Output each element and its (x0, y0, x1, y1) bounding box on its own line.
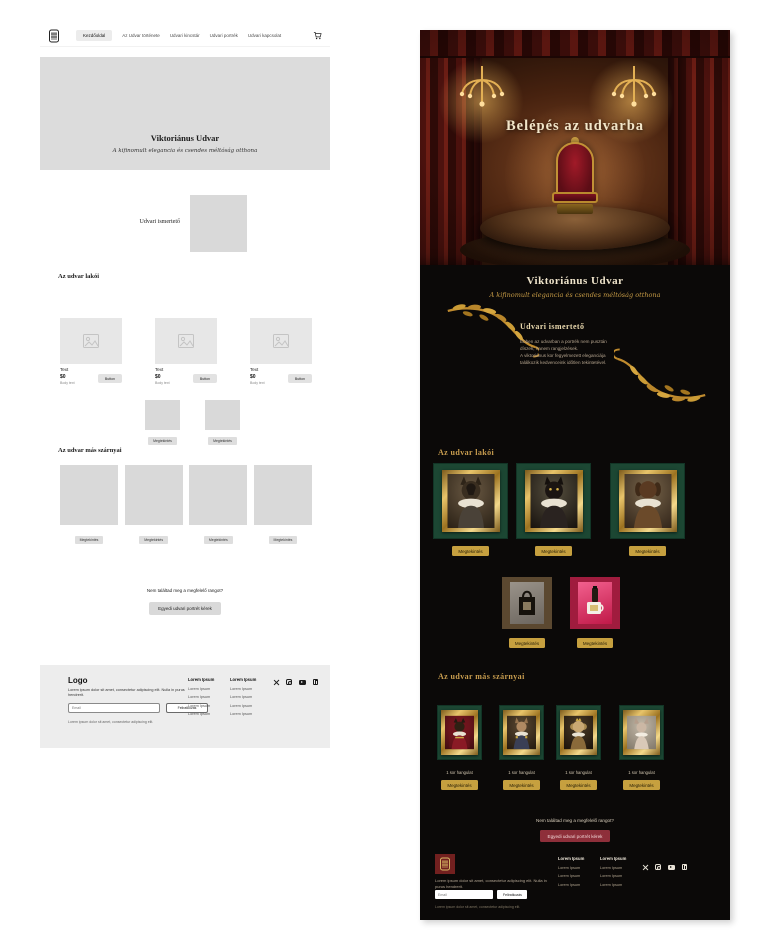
footer-link-column: Lorem Ipsum Lorem Ipsum Lorem Ipsum Lore… (230, 677, 256, 716)
wing-caption: 1 sor hangulat (446, 770, 473, 775)
cta-question: Nem találtad meg a megfelelő rangot? (536, 818, 614, 823)
gold-frame (525, 470, 583, 532)
about-heading: Udvari ismertető (520, 322, 672, 331)
cta-button[interactable]: Egyedi udvari portrét kérek (149, 602, 221, 615)
gold-frame (442, 470, 500, 532)
design-hero: Belépés az udvarba (420, 30, 730, 265)
view-button[interactable]: Megtekintés (560, 780, 596, 790)
wing-caption: 1 sor hangulat (565, 770, 592, 775)
footer-link[interactable]: Lorem Ipsum (600, 874, 626, 878)
card-button[interactable]: Button (193, 374, 217, 383)
footer-link[interactable]: Lorem Ipsum (600, 883, 626, 887)
linkedin-icon[interactable] (313, 679, 319, 685)
wireframe-hero: Viktoriánus Udvar A kifinomult elegancia… (40, 57, 330, 170)
design-artboard: Belépés az udvarba Viktoriánus Udvar A k… (420, 30, 730, 920)
sphynx-cat-portrait[interactable] (619, 705, 664, 760)
wing-placeholder (60, 465, 118, 525)
footer-link[interactable]: Lorem Ipsum (230, 704, 256, 708)
social-icons (273, 679, 318, 685)
card-body-text: Body text (250, 381, 265, 385)
about-section: Udvari ismertető Ebben az udvarban a por… (520, 322, 672, 367)
product-card: Megtekintés (502, 577, 552, 648)
shepherd-dog-portrait[interactable] (433, 463, 508, 539)
about-body: Ebben az udvarban a portrék nem pusztán … (520, 339, 672, 367)
footer-link[interactable]: Lorem Ipsum (558, 883, 584, 887)
footer-link-column: Lorem Ipsum Lorem Ipsum Lorem Ipsum Lore… (188, 677, 214, 716)
portrait-card: Megtekintés (433, 463, 508, 556)
gold-frame (619, 470, 677, 532)
wing-item: Megtekintés (254, 465, 312, 544)
instagram-icon[interactable] (286, 679, 292, 685)
crest-icon (439, 857, 451, 871)
image-placeholder (250, 318, 312, 364)
footer-link[interactable]: Lorem Ipsum (558, 874, 584, 878)
footer-link[interactable]: Lorem Ipsum (230, 712, 256, 716)
wireframe-artboard: Kezdőoldal Az Udvar története Udvari kin… (40, 25, 330, 750)
gold-frame (623, 710, 660, 755)
view-button[interactable]: Megtekintés (208, 437, 237, 445)
site-title: Viktoriánus Udvar (420, 275, 730, 287)
nav-item-treasury[interactable]: Udvari kincstár (170, 33, 200, 38)
view-button[interactable]: Megtekintés (509, 638, 545, 648)
small-products-row: Megtekintés Megtekintés (145, 400, 240, 445)
gold-frame (441, 710, 478, 755)
cta-question: Nem találtad meg a megfelelő rangot? (147, 588, 223, 593)
footer-link[interactable]: Lorem Ipsum (188, 687, 214, 691)
card-title: Text (60, 367, 122, 372)
wing-item: Megtekintés (125, 465, 183, 544)
wing-card: 1 sor hangulat Megtekintés (437, 705, 482, 790)
linkedin-icon[interactable] (682, 864, 688, 870)
footer-link[interactable]: Lorem Ipsum (558, 866, 584, 870)
nav-item-history[interactable]: Az Udvar története (122, 33, 160, 38)
cart-icon[interactable] (313, 31, 322, 40)
portrait-art (446, 474, 496, 528)
portrait-art (564, 714, 593, 751)
intro-section: Udvari ismertető (40, 195, 330, 252)
pekingese-crown-portrait[interactable] (556, 705, 601, 760)
nav-items: Kezdőoldal Az Udvar története Udvari kin… (76, 30, 281, 41)
wings-heading: Az udvar más szárnyai (438, 672, 525, 681)
small-product: Megtekintés (145, 400, 180, 445)
footer-link[interactable]: Lorem Ipsum (188, 712, 214, 716)
cta-button[interactable]: Egyedi udvari portrét kérek (540, 830, 611, 842)
instagram-icon[interactable] (655, 864, 661, 870)
card-button[interactable]: Button (288, 374, 312, 383)
portrait-art (507, 714, 536, 751)
product-card: Text $0 Body text Button (250, 318, 312, 385)
cta-section: Nem találtad meg a megfelelő rangot? Egy… (420, 818, 730, 842)
wireframe-navbar: Kezdőoldal Az Udvar története Udvari kin… (40, 25, 330, 47)
view-button[interactable]: Megtekintés (75, 536, 104, 544)
product-card: Text $0 Body text Button (60, 318, 122, 385)
portrait-art (445, 714, 474, 751)
image-placeholder (60, 318, 122, 364)
wing-placeholder (125, 465, 183, 525)
x-twitter-icon[interactable] (273, 679, 279, 685)
dachshund-portrait[interactable] (610, 463, 685, 539)
dog-on-throne-portrait[interactable] (437, 705, 482, 760)
view-button[interactable]: Megtekintés (535, 546, 571, 556)
wing-card: 1 sor hangulat Megtekintés (499, 705, 544, 790)
portrait-art (529, 474, 579, 528)
mug-and-bottle-icon (582, 586, 608, 620)
residents-heading: Az udvar lakói (58, 273, 99, 280)
intro-label: Udvari ismertető (140, 219, 181, 225)
newsletter-form: Feliratkozás (435, 890, 527, 899)
hero-subtitle: A kifinomult elegancia és csendes méltós… (113, 148, 258, 154)
design-footer: Lorem ipsum dolor sit amet, consectetur … (420, 852, 730, 920)
wing-card: 1 sor hangulat Megtekintés (619, 705, 664, 790)
site-subtitle: A kifinomult elegancia és csendes méltós… (420, 291, 730, 299)
wing-caption: 1 sor hangulat (628, 770, 655, 775)
card-body-text: Body text (60, 381, 75, 385)
footer-logo-crest (435, 854, 455, 874)
tote-bag-icon (515, 587, 539, 619)
portrait-card: Megtekintés (516, 463, 591, 556)
email-input[interactable] (435, 890, 493, 899)
vignette-overlay (420, 30, 730, 265)
view-button[interactable]: Megtekintés (503, 780, 539, 790)
column-header: Lorem Ipsum (188, 677, 214, 682)
hero-title: Belépés az udvarba (420, 118, 730, 135)
footer-note: Lorem ipsum dolor sit amet, consectetur … (435, 905, 520, 909)
card-body-text: Body text (155, 381, 170, 385)
mug-image[interactable] (570, 577, 620, 629)
wings-row: Megtekintés Megtekintés Megtekintés Megt… (60, 465, 312, 544)
footer-link[interactable]: Lorem Ipsum (230, 695, 256, 699)
social-icons (642, 864, 687, 870)
newsletter-form: Feliratkozás (68, 703, 208, 713)
footer-link-column: Lorem Ipsum Lorem Ipsum Lorem Ipsum Lore… (558, 856, 584, 887)
image-placeholder (155, 318, 217, 364)
view-button[interactable]: Megtekintés (441, 780, 477, 790)
card-price: $0 (250, 374, 265, 380)
footer-link[interactable]: Lorem Ipsum (188, 695, 214, 699)
footer-description: Lorem ipsum dolor sit amet, consectetur … (435, 878, 553, 889)
product-card: Megtekintés (570, 577, 620, 648)
wing-card: 1 sor hangulat Megtekintés (556, 705, 601, 790)
nav-item-contact[interactable]: Udvari kapcsolat (248, 33, 281, 38)
picture-icon (273, 334, 289, 348)
footer-logo: Logo (68, 676, 88, 685)
gold-frame (503, 710, 540, 755)
view-button[interactable]: Megtekintés (577, 638, 613, 648)
footer-link[interactable]: Lorem Ipsum (230, 687, 256, 691)
tote-bag-image[interactable] (502, 577, 552, 629)
sphynx-officer-portrait[interactable] (499, 705, 544, 760)
footer-note: Lorem ipsum dolor sit amet, consectetur … (68, 720, 153, 724)
card-title: Text (250, 367, 312, 372)
residents-card-row: Text $0 Body text Button (60, 318, 312, 385)
wing-item: Megtekintés (60, 465, 118, 544)
picture-icon (178, 334, 194, 348)
card-price: $0 (60, 374, 75, 380)
portrait-art (623, 474, 673, 528)
subscribe-button[interactable]: Feliratkozás (497, 890, 527, 899)
gold-frame (560, 710, 597, 755)
x-twitter-icon[interactable] (642, 864, 648, 870)
small-product-placeholder (205, 400, 240, 430)
small-product-placeholder (145, 400, 180, 430)
view-button[interactable]: Megtekintés (204, 536, 233, 544)
card-price: $0 (155, 374, 170, 380)
portrait-art (627, 714, 656, 751)
wireframe-footer: Logo Lorem ipsum dolor sit amet, consect… (40, 665, 330, 748)
view-button[interactable]: Megtekintés (629, 546, 665, 556)
email-input[interactable] (68, 703, 160, 713)
wing-item: Megtekintés (189, 465, 247, 544)
wings-heading: Az udvar más szárnyai (58, 447, 122, 454)
footer-link[interactable]: Lorem Ipsum (600, 866, 626, 870)
logo-icon (48, 29, 60, 43)
footer-link-column: Lorem Ipsum Lorem Ipsum Lorem Ipsum Lore… (600, 856, 626, 887)
picture-icon (83, 334, 99, 348)
column-header: Lorem Ipsum (600, 856, 626, 861)
wing-placeholder (189, 465, 247, 525)
design-canvas: Kezdőoldal Az Udvar története Udvari kin… (0, 0, 768, 934)
residents-heading: Az udvar lakói (438, 448, 494, 457)
wing-placeholder (254, 465, 312, 525)
hero-title: Viktoriánus Udvar (151, 133, 219, 143)
card-button[interactable]: Button (98, 374, 122, 383)
portrait-card: Megtekintés (610, 463, 685, 556)
product-card: Text $0 Body text Button (155, 318, 217, 385)
wing-caption: 1 sor hangulat (508, 770, 535, 775)
view-button[interactable]: Megtekintés (452, 546, 488, 556)
youtube-icon[interactable] (299, 680, 306, 685)
small-product: Megtekintés (205, 400, 240, 445)
footer-link[interactable]: Lorem Ipsum (188, 704, 214, 708)
youtube-icon[interactable] (668, 865, 675, 870)
view-button[interactable]: Megtekintés (623, 780, 659, 790)
footer-description: Lorem ipsum dolor sit amet, consectetur … (68, 688, 186, 699)
cta-section: Nem találtad meg a megfelelő rangot? Egy… (40, 588, 330, 615)
view-button[interactable]: Megtekintés (269, 536, 298, 544)
column-header: Lorem Ipsum (230, 677, 256, 682)
nav-item-home[interactable]: Kezdőoldal (76, 30, 112, 41)
card-title: Text (155, 367, 217, 372)
column-header: Lorem Ipsum (558, 856, 584, 861)
view-button[interactable]: Megtekintés (139, 536, 168, 544)
black-cat-portrait[interactable] (516, 463, 591, 539)
view-button[interactable]: Megtekintés (148, 437, 177, 445)
nav-item-portraits[interactable]: Udvari portrék (210, 33, 238, 38)
intro-image-placeholder (190, 195, 247, 252)
